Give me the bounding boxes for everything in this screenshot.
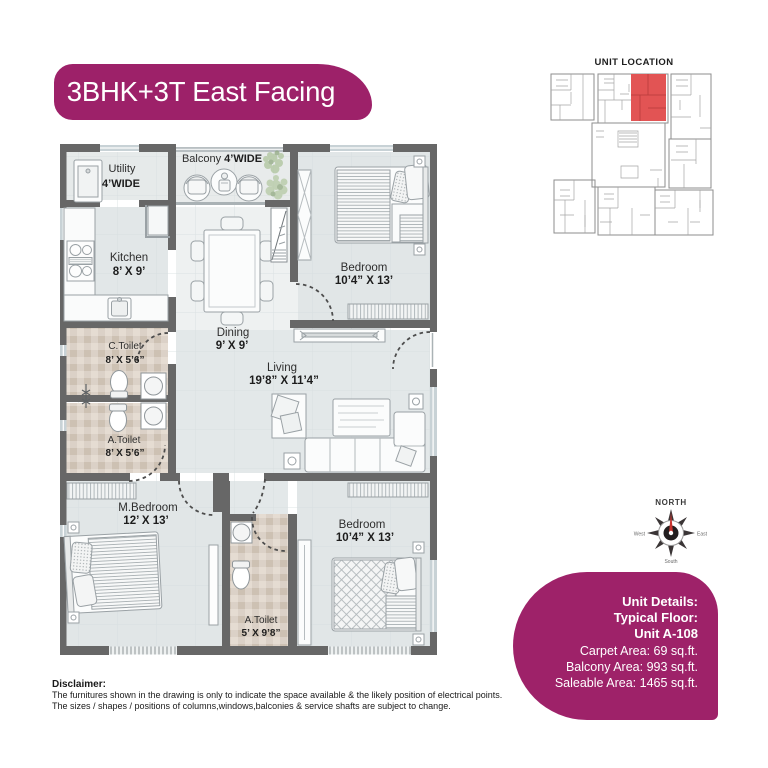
- svg-text:Bedroom: Bedroom: [341, 262, 388, 274]
- svg-text:10’4” X 13’: 10’4” X 13’: [336, 532, 394, 544]
- svg-text:5’ X 9’8”: 5’ X 9’8”: [242, 628, 281, 639]
- svg-text:M.Bedroom: M.Bedroom: [118, 502, 177, 514]
- svg-text:A.Toilet: A.Toilet: [245, 615, 278, 626]
- svg-text:C.Toilet: C.Toilet: [108, 341, 142, 352]
- svg-text:Kitchen: Kitchen: [110, 252, 148, 264]
- svg-text:8’ X 5’6”: 8’ X 5’6”: [106, 355, 145, 366]
- svg-text:UNIT LOCATION: UNIT LOCATION: [595, 57, 674, 68]
- svg-text:4’WIDE: 4’WIDE: [102, 178, 140, 190]
- svg-text:South: South: [664, 559, 677, 565]
- svg-text:8’ X 9’: 8’ X 9’: [113, 266, 146, 278]
- svg-text:10’4” X 13’: 10’4” X 13’: [335, 275, 393, 287]
- svg-text:Bedroom: Bedroom: [339, 519, 386, 531]
- svg-text:West: West: [634, 532, 646, 538]
- svg-text:12’ X 13’: 12’ X 13’: [123, 515, 168, 527]
- svg-text:Balcony 4’WIDE: Balcony 4’WIDE: [182, 153, 262, 165]
- svg-text:NORTH: NORTH: [655, 498, 686, 507]
- svg-text:8’ X 5’6”: 8’ X 5’6”: [106, 448, 145, 459]
- svg-text:Dining: Dining: [217, 327, 250, 339]
- svg-text:A.Toilet: A.Toilet: [108, 435, 141, 446]
- svg-text:9’ X 9’: 9’ X 9’: [216, 340, 249, 352]
- svg-text:East: East: [697, 532, 708, 538]
- svg-text:Utility: Utility: [109, 163, 136, 175]
- svg-text:Living: Living: [267, 362, 297, 374]
- svg-text:19’8” X 11’4”: 19’8” X 11’4”: [249, 375, 319, 387]
